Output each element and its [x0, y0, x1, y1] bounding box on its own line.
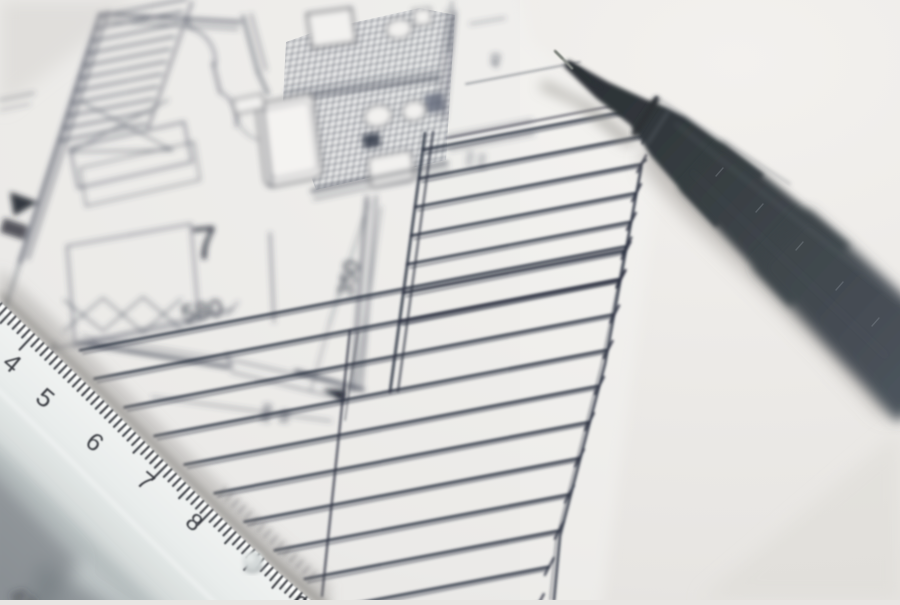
svg-text:40: 40 — [487, 52, 504, 68]
svg-text:150: 150 — [464, 150, 477, 168]
